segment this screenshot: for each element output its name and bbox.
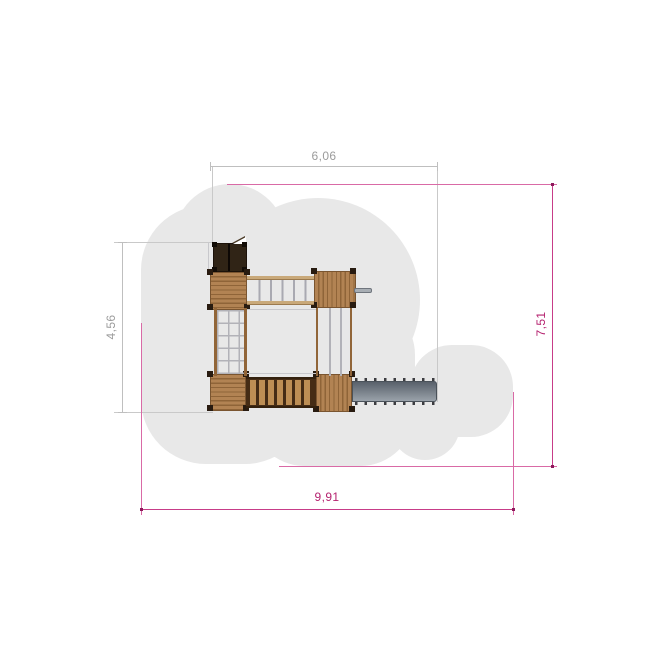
- pole-rail-left: [316, 308, 318, 376]
- corner-post: [349, 406, 355, 412]
- zone-ext-right: [513, 392, 514, 515]
- dim-line-top: [210, 166, 438, 167]
- dim-end-dot: [551, 465, 554, 468]
- dim-line-right: [552, 184, 553, 466]
- corner-post: [207, 269, 213, 275]
- dim-line-bottom: [141, 509, 513, 510]
- play-structure: [0, 0, 660, 660]
- clatter-bridge-planks: [250, 380, 312, 405]
- dim-end-dot: [551, 183, 554, 186]
- dim-label-bottom: 9,91: [297, 490, 357, 504]
- pole-rail-right: [350, 308, 352, 376]
- dim-label-right: 7,51: [534, 294, 548, 354]
- roof-post: [212, 242, 217, 247]
- corner-post: [207, 371, 213, 377]
- plan-drawing: 7,51 9,91 6,06 4,56: [0, 0, 660, 660]
- corner-post: [207, 405, 213, 411]
- dim-line-left: [122, 242, 123, 413]
- zone-ext-top: [227, 184, 557, 185]
- corner-post: [311, 268, 317, 274]
- slide-rivets-top: [355, 378, 436, 381]
- dim-tick: [118, 242, 127, 243]
- dim-label-left: 4,56: [104, 297, 118, 357]
- slide-rivets-bottom: [355, 402, 436, 405]
- fireman-poles: [329, 308, 342, 376]
- deck-edge-top: [247, 309, 316, 310]
- deck-edge-bottom: [247, 373, 316, 374]
- corner-post: [350, 268, 356, 274]
- slide: [352, 381, 437, 402]
- grip-handle: [354, 288, 372, 293]
- bridge-rungs: [249, 280, 312, 301]
- platform-bottom-right: [316, 374, 352, 412]
- corner-post: [207, 304, 213, 310]
- ladder-rail-right: [244, 308, 247, 376]
- platform-top-left: [210, 272, 247, 310]
- roof-ridge: [228, 244, 230, 271]
- climbing-net-ladder: [217, 310, 244, 374]
- bridge-rail-bottom: [247, 301, 314, 305]
- platform-bottom-left: [210, 374, 246, 411]
- corner-post: [244, 269, 250, 275]
- dim-end-dot: [140, 508, 143, 511]
- dim-end-dot: [512, 508, 515, 511]
- zone-ext-left: [141, 323, 142, 515]
- dim-tick: [118, 412, 127, 413]
- dim-label-top: 6,06: [294, 149, 354, 163]
- dim-tick: [210, 162, 211, 171]
- zone-ext-bottom: [279, 466, 557, 467]
- roof-post: [242, 242, 247, 247]
- dim-tick: [437, 162, 438, 171]
